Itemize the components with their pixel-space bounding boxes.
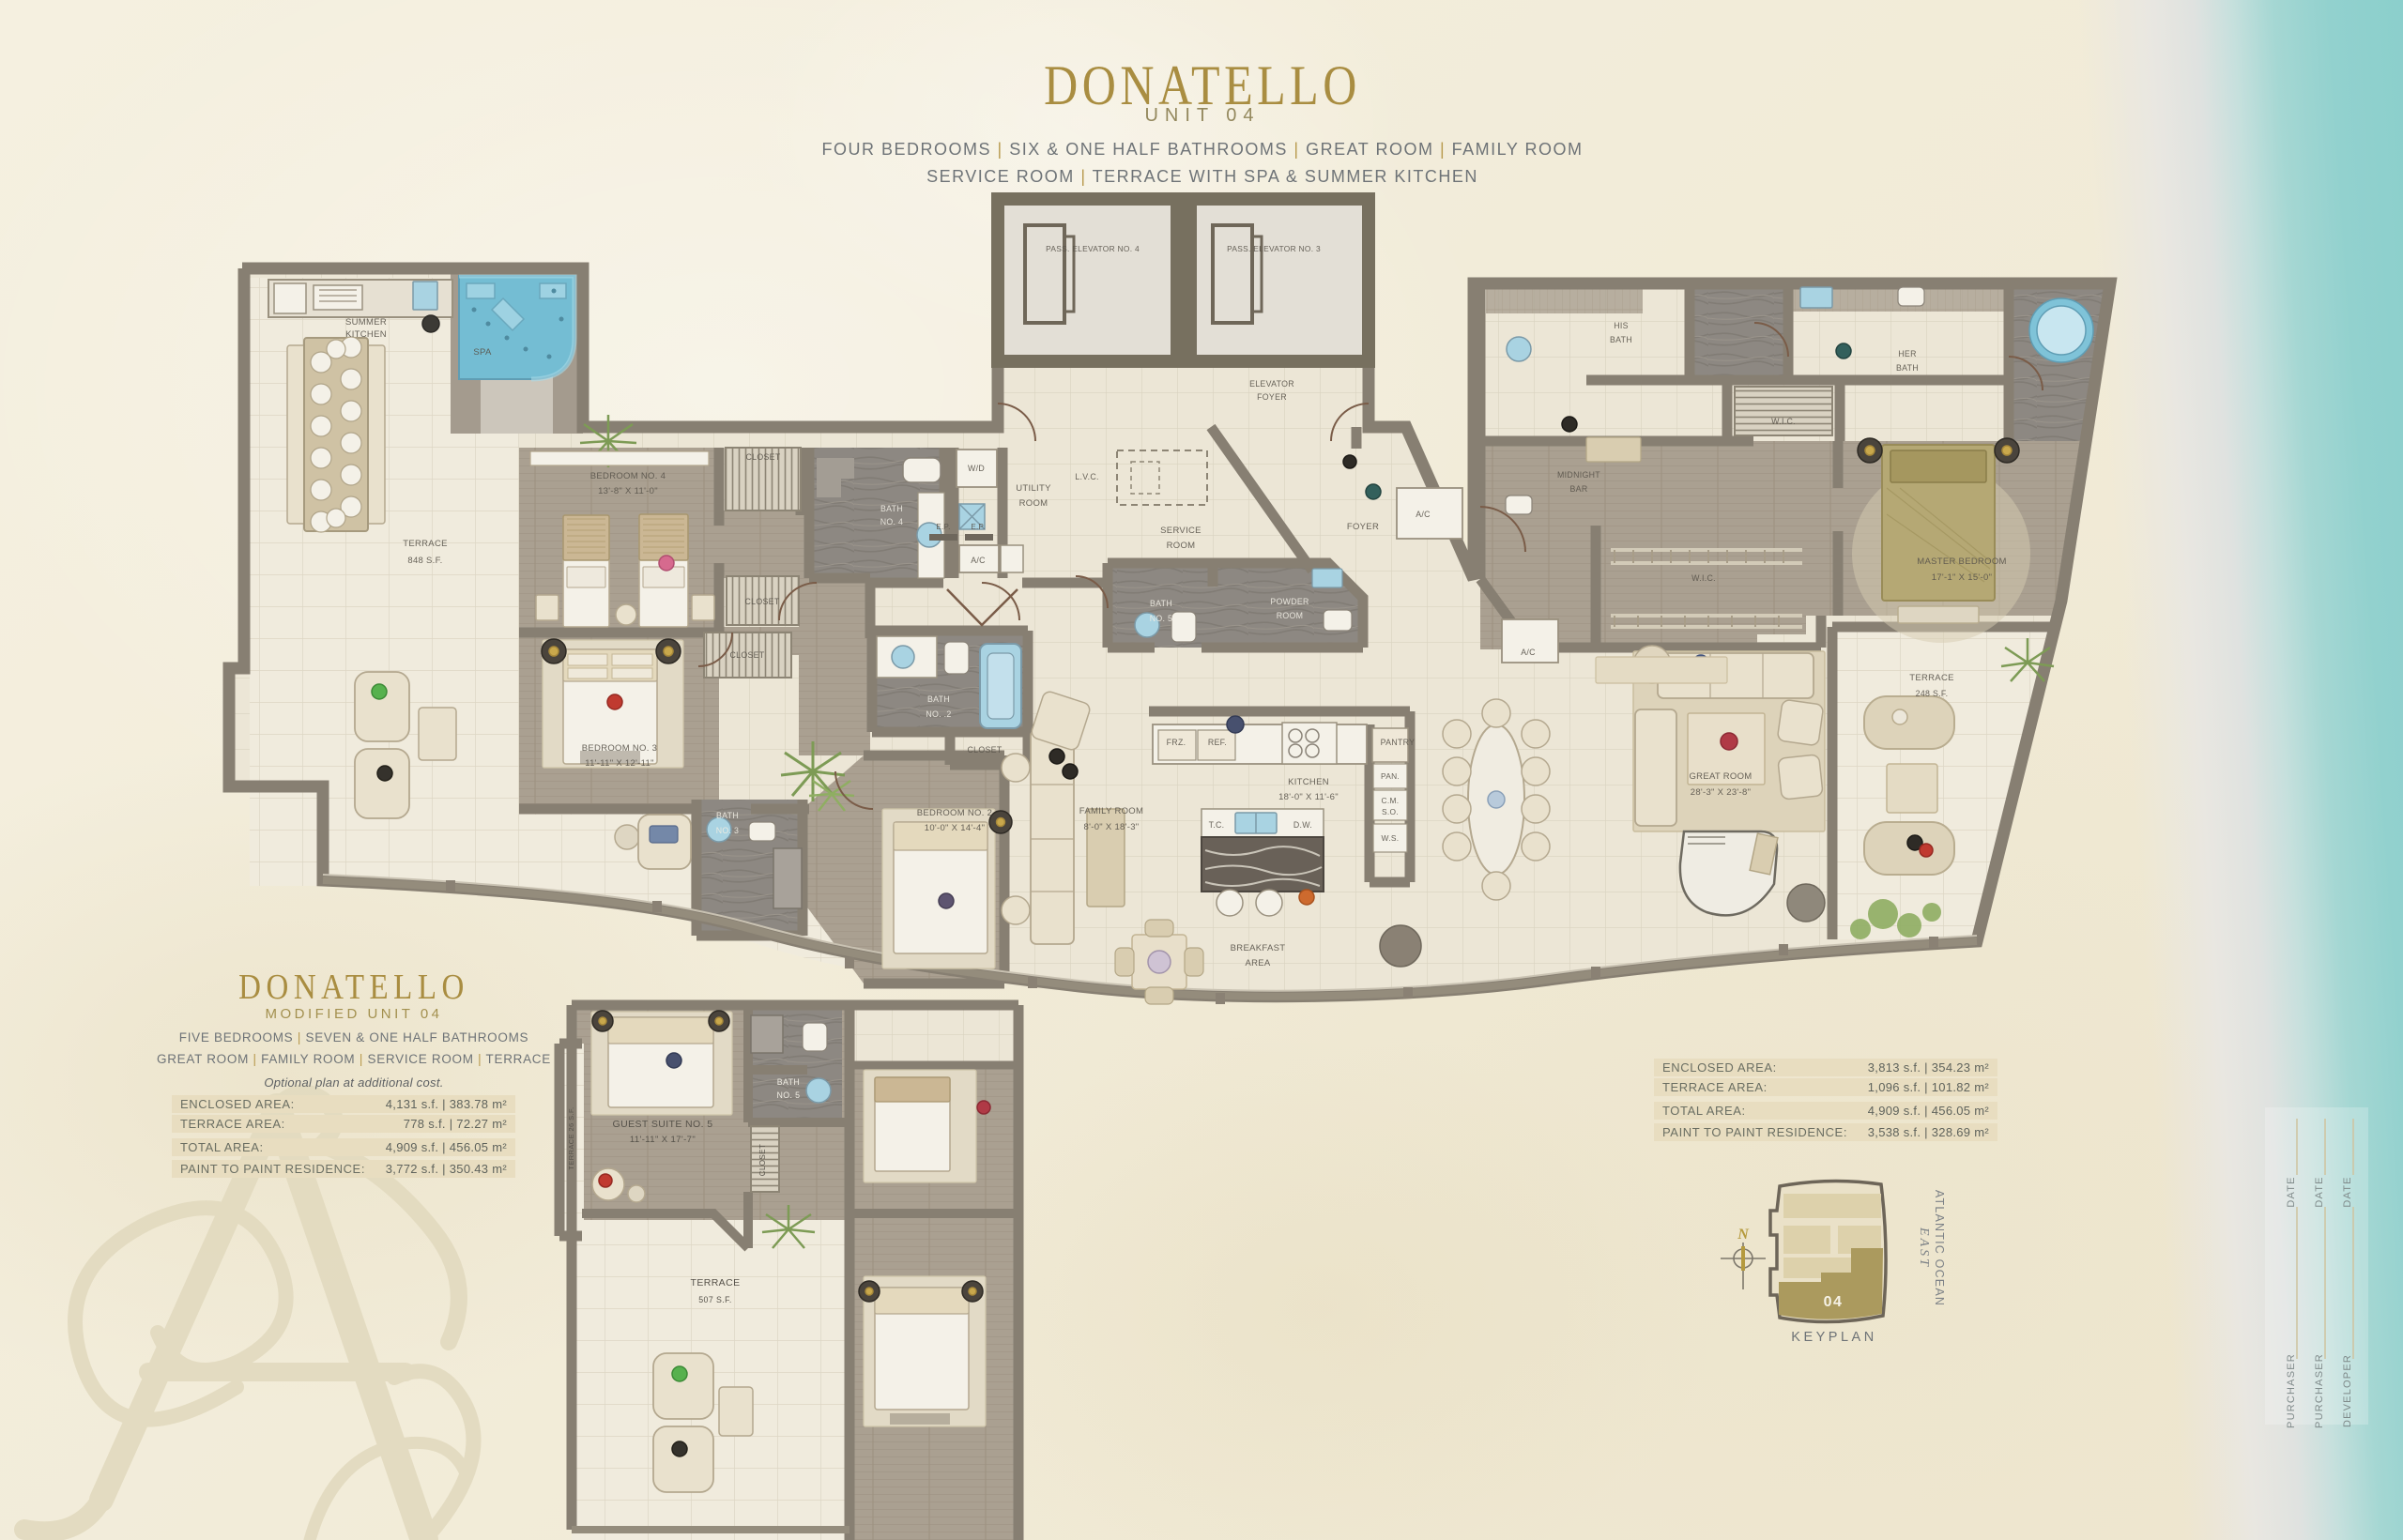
svg-text:PANTRY: PANTRY: [1381, 738, 1416, 747]
svg-text:13'-8" X 11'-0": 13'-8" X 11'-0": [598, 486, 658, 496]
svg-text:E.P.: E.P.: [971, 523, 985, 531]
svg-text:ROOM: ROOM: [1167, 541, 1196, 551]
svg-text:TERRACE: TERRACE: [1909, 673, 1954, 683]
svg-text:A/C: A/C: [971, 556, 986, 565]
svg-text:TERRACE: TERRACE: [691, 1277, 741, 1288]
svg-text:EAST: EAST: [1917, 1227, 1931, 1269]
svg-text:FOYER: FOYER: [1257, 392, 1287, 402]
svg-text:BATH: BATH: [716, 811, 739, 820]
svg-text:SUMMER: SUMMER: [345, 317, 387, 328]
svg-text:C.M.: C.M.: [1382, 796, 1400, 805]
svg-text:MIDNIGHT: MIDNIGHT: [1557, 470, 1600, 480]
svg-text:FRZ.: FRZ.: [1167, 738, 1186, 747]
svg-text:NO. 4: NO. 4: [880, 517, 903, 526]
svg-text:248 S.F.: 248 S.F.: [1916, 689, 1949, 698]
svg-text:BATH: BATH: [1896, 363, 1919, 373]
svg-text:PASS. ELEVATOR NO. 4: PASS. ELEVATOR NO. 4: [1046, 244, 1140, 253]
svg-text:DATE: DATE: [2286, 1176, 2297, 1207]
svg-text:FAMILY ROOM: FAMILY ROOM: [1079, 806, 1143, 816]
svg-text:ROOM: ROOM: [1277, 611, 1304, 620]
svg-text:17'-1" X 15'-0": 17'-1" X 15'-0": [1932, 572, 1993, 583]
svg-text:UTILITY: UTILITY: [1016, 483, 1051, 494]
svg-text:W.S.: W.S.: [1382, 833, 1400, 843]
svg-text:NO. .2: NO. .2: [926, 709, 951, 719]
svg-text:PAN.: PAN.: [1381, 771, 1400, 781]
svg-text:SPA: SPA: [473, 347, 492, 358]
svg-text:BEDROOM NO. 3: BEDROOM NO. 3: [582, 743, 657, 754]
svg-text:GREAT ROOM: GREAT ROOM: [1689, 771, 1752, 782]
svg-text:DATE: DATE: [2342, 1176, 2353, 1207]
svg-text:BREAKFAST: BREAKFAST: [1231, 943, 1286, 953]
svg-text:10'-0" X 14'-4": 10'-0" X 14'-4": [925, 823, 986, 833]
svg-text:E.P.: E.P.: [936, 523, 950, 531]
svg-text:BATH: BATH: [777, 1077, 800, 1087]
svg-text:NO. 3: NO. 3: [716, 826, 739, 835]
svg-text:CLOSET: CLOSET: [968, 745, 1003, 755]
svg-text:DATE: DATE: [2314, 1176, 2325, 1207]
svg-text:ROOM: ROOM: [1019, 498, 1048, 509]
svg-text:BATH: BATH: [1150, 599, 1172, 608]
svg-text:BATH: BATH: [880, 504, 903, 513]
svg-text:W.I.C.: W.I.C.: [1691, 573, 1716, 583]
svg-text:DEVELOPER: DEVELOPER: [2342, 1354, 2353, 1427]
svg-text:MASTER BEDROOM: MASTER BEDROOM: [1917, 557, 2007, 567]
svg-text:A/C: A/C: [1521, 648, 1536, 657]
svg-text:507 S.F.: 507 S.F.: [698, 1295, 731, 1304]
svg-text:8'-0" X 18'-3": 8'-0" X 18'-3": [1084, 822, 1140, 832]
svg-text:18'-0" X 11'-6": 18'-0" X 11'-6": [1278, 792, 1339, 802]
svg-text:T.C.: T.C.: [1209, 820, 1225, 830]
svg-text:REF.: REF.: [1208, 738, 1227, 747]
svg-text:KITCHEN: KITCHEN: [345, 329, 387, 340]
svg-text:HER: HER: [1898, 349, 1916, 358]
svg-text:KITCHEN: KITCHEN: [1288, 777, 1329, 787]
svg-text:HIS: HIS: [1614, 321, 1629, 330]
svg-text:TERRACE: TERRACE: [403, 539, 448, 549]
svg-text:NO. 5: NO. 5: [777, 1090, 801, 1100]
svg-text:CLOSET: CLOSET: [745, 597, 780, 606]
svg-text:CLOSET: CLOSET: [746, 452, 781, 462]
svg-text:848 S.F.: 848 S.F.: [407, 556, 442, 566]
svg-text:ELEVATOR: ELEVATOR: [1249, 379, 1294, 389]
svg-text:AREA: AREA: [1245, 958, 1270, 968]
svg-text:28'-3" X 23'-8": 28'-3" X 23'-8": [1691, 787, 1752, 798]
svg-text:D.W.: D.W.: [1293, 820, 1312, 830]
svg-text:FOYER: FOYER: [1347, 522, 1379, 532]
svg-text:NO. 5: NO. 5: [1150, 614, 1172, 623]
svg-text:W.I.C.: W.I.C.: [1771, 417, 1796, 426]
svg-text:11'-11" X 17'-7": 11'-11" X 17'-7": [630, 1135, 696, 1145]
svg-text:BEDROOM NO. 2: BEDROOM NO. 2: [917, 808, 992, 818]
svg-text:BAR: BAR: [1570, 484, 1588, 494]
svg-text:L.V.C.: L.V.C.: [1075, 472, 1098, 481]
svg-text:PURCHASER: PURCHASER: [2314, 1353, 2325, 1428]
svg-text:S.O.: S.O.: [1382, 807, 1399, 816]
svg-text:PASS. ELEVATOR NO. 3: PASS. ELEVATOR NO. 3: [1227, 244, 1321, 253]
svg-text:TERRACE 26 S.F.: TERRACE 26 S.F.: [567, 1106, 575, 1169]
svg-text:BATH: BATH: [1610, 335, 1632, 344]
svg-text:W/D: W/D: [968, 464, 985, 473]
svg-text:A/C: A/C: [1416, 510, 1431, 519]
svg-text:04: 04: [1824, 1294, 1844, 1310]
svg-text:KEYPLAN: KEYPLAN: [1791, 1330, 1876, 1345]
svg-text:CLOSET: CLOSET: [758, 1144, 767, 1176]
svg-text:BATH: BATH: [927, 694, 950, 704]
svg-text:N: N: [1737, 1227, 1750, 1243]
svg-text:POWDER: POWDER: [1270, 597, 1309, 606]
svg-text:GUEST SUITE NO. 5: GUEST SUITE NO. 5: [613, 1119, 713, 1130]
svg-text:PURCHASER: PURCHASER: [2286, 1353, 2297, 1428]
svg-text:ATLANTIC OCEAN: ATLANTIC OCEAN: [1933, 1190, 1946, 1306]
svg-text:BEDROOM NO. 4: BEDROOM NO. 4: [590, 471, 666, 481]
svg-text:11'-11" X 12'-11": 11'-11" X 12'-11": [585, 758, 654, 769]
svg-text:SERVICE: SERVICE: [1160, 526, 1201, 536]
svg-text:CLOSET: CLOSET: [730, 650, 765, 660]
